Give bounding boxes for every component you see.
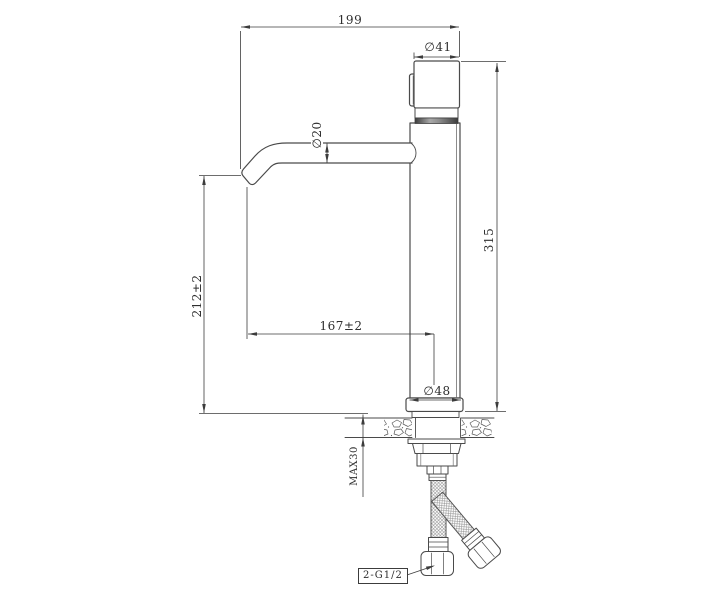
- mounting-nut: [413, 444, 462, 454]
- faucet-spout: [242, 143, 416, 185]
- label-overall-height: 315: [483, 226, 495, 254]
- label-max-counter-thickness: MAX30: [350, 444, 360, 488]
- countertop-section: [345, 418, 494, 438]
- counter-hatch-right: [462, 419, 492, 437]
- hose-nut-vertical: [421, 552, 454, 576]
- label-cap-diameter: ∅41: [422, 41, 453, 53]
- label-base-diameter: ∅48: [421, 385, 452, 397]
- label-spout-height: 212±2: [191, 272, 203, 319]
- counter-hatch-left: [384, 419, 412, 437]
- drawing-canvas: 199 ∅41 ∅20 315 212±2 167±2 ∅48 MAX30 2-…: [0, 0, 720, 600]
- label-overall-width: 199: [336, 14, 364, 26]
- technical-drawing: [0, 0, 720, 600]
- hose-hex-fitting: [427, 466, 448, 474]
- faucet-handle-head: [410, 61, 460, 124]
- faucet-body: [410, 123, 460, 398]
- supply-hose-vertical: [421, 481, 454, 576]
- handle-trim-ring: [415, 118, 458, 124]
- label-spout-diameter: ∅20: [311, 119, 323, 150]
- label-hose-connection: 2-G1/2: [358, 568, 408, 584]
- faucet-outline: [242, 61, 503, 576]
- fixing-hardware: [408, 439, 465, 481]
- label-spout-reach: 167±2: [317, 320, 364, 332]
